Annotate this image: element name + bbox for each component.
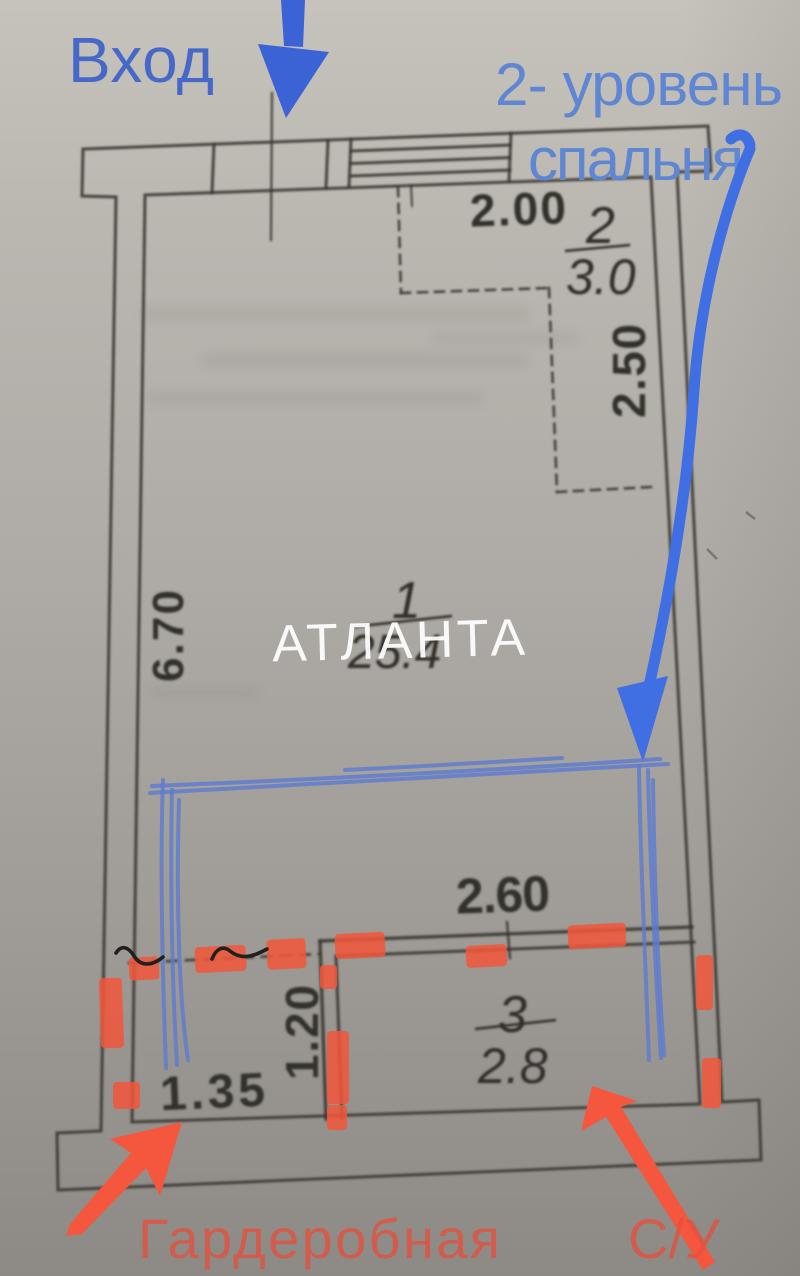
svg-text:1.20: 1.20 [276,985,328,1080]
svg-text:Вход: Вход [68,24,214,96]
svg-text:3.0: 3.0 [566,249,636,305]
svg-text:2- уровень: 2- уровень [495,51,783,118]
svg-text:3: 3 [498,986,527,1044]
svg-text:С/У: С/У [628,1207,720,1270]
svg-text:2.8: 2.8 [477,1038,548,1094]
svg-text:1.35: 1.35 [159,1064,266,1122]
svg-text:2.50: 2.50 [603,324,655,418]
svg-text:6.70: 6.70 [144,590,193,682]
svg-text:2.60: 2.60 [455,865,551,924]
svg-text:спальня: спальня [528,126,744,193]
svg-text:Гардеробная: Гардеробная [138,1207,500,1270]
